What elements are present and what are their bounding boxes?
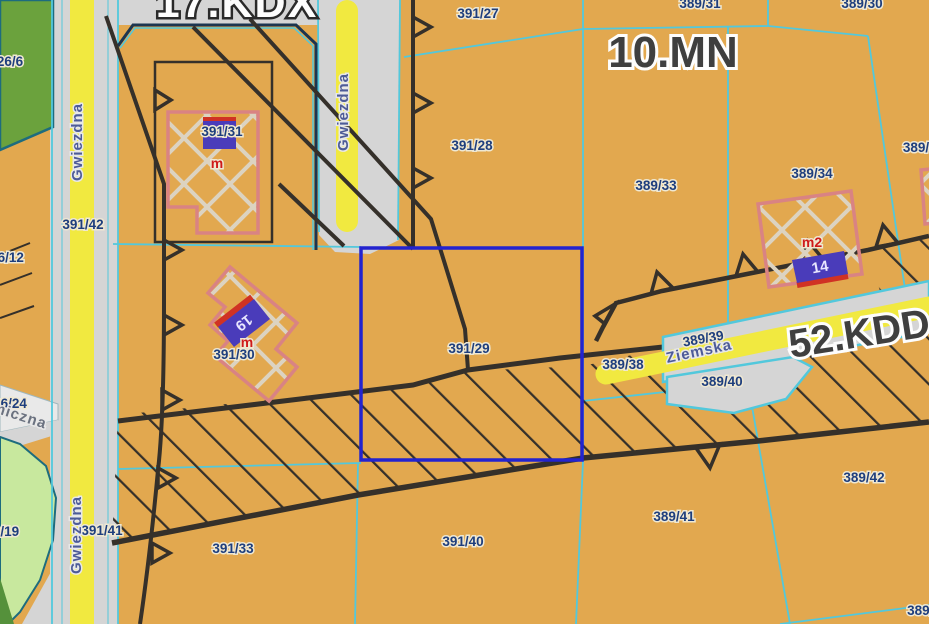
- parcel-label: 26/6: [0, 54, 24, 69]
- building-use-label: m: [241, 334, 253, 350]
- zone-label-mn: 10.MN: [608, 28, 738, 77]
- map-canvas[interactable]: 19 14 391/27 389/31 389/30 391/28 389/33…: [0, 0, 929, 624]
- road-gwiezdna-right[interactable]: [318, 0, 400, 254]
- building-use-label: m: [211, 155, 223, 171]
- parcel-label: 389/41: [653, 509, 695, 524]
- map-viewport: 19 14 391/27 389/31 389/30 391/28 389/33…: [0, 0, 929, 624]
- green-parcel-26-6[interactable]: [0, 0, 53, 150]
- parcel-label: 391/27: [457, 6, 498, 21]
- parcel-label: 389/33: [635, 178, 677, 193]
- parcel-label: 391/31: [201, 124, 243, 139]
- parcel-label: 389/30: [841, 0, 882, 11]
- parcel-label-selected: 391/29: [448, 341, 489, 356]
- parcel-label: 389/31: [679, 0, 721, 11]
- building-use-label: m2: [802, 234, 822, 250]
- parcel-label: 389/34: [791, 166, 833, 181]
- parcel-label: 26/12: [0, 250, 24, 265]
- parcel-label: 391/41: [81, 523, 123, 538]
- parcel-label: 389/40: [701, 374, 742, 389]
- parcel-label: 389/5: [907, 603, 929, 618]
- parcel-label: 391/42: [62, 217, 103, 232]
- street-label-gwiezdna-bottom: Gwiezdna: [68, 496, 85, 574]
- parcel-label: 389/42: [843, 470, 884, 485]
- parcel-label: 389/: [903, 140, 929, 155]
- zone-label-kdx: 17.KDX: [156, 0, 319, 27]
- parcel-label: 391/40: [442, 534, 483, 549]
- parcel-label: 6/19: [0, 524, 19, 539]
- street-label-gwiezdna-top: Gwiezdna: [69, 103, 86, 181]
- parcel-label: 391/33: [212, 541, 254, 556]
- street-label-gwiezdna-right: Gwiezdna: [335, 73, 352, 151]
- parcel-label: 391/28: [451, 138, 493, 153]
- parcel-label: 389/38: [602, 357, 644, 372]
